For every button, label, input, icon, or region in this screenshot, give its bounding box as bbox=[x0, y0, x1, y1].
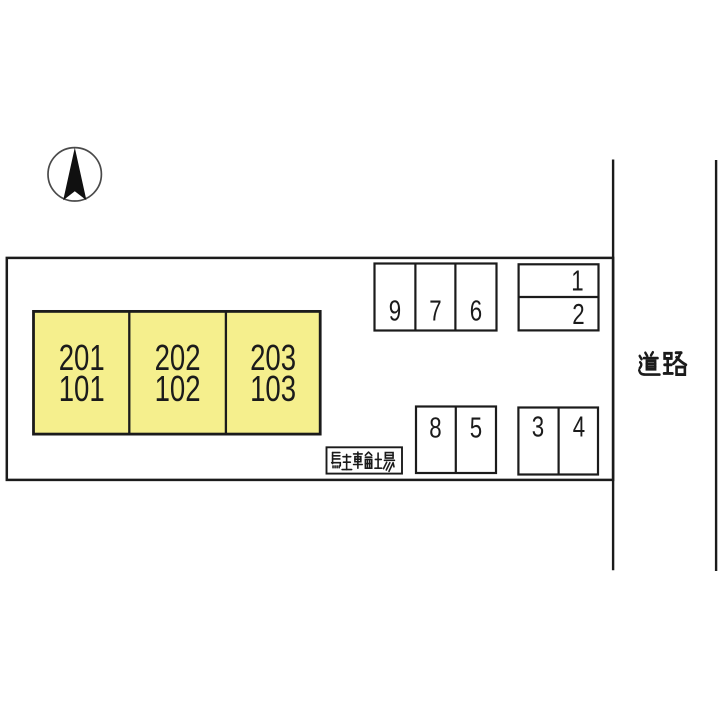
svg-text:5: 5 bbox=[470, 413, 482, 445]
svg-text:103: 103 bbox=[250, 368, 296, 409]
svg-text:2: 2 bbox=[572, 299, 584, 331]
svg-text:1: 1 bbox=[571, 266, 583, 298]
svg-text:102: 102 bbox=[155, 368, 201, 409]
svg-text:3: 3 bbox=[532, 412, 544, 444]
svg-text:9: 9 bbox=[389, 296, 401, 328]
svg-text:7: 7 bbox=[429, 296, 441, 328]
svg-text:8: 8 bbox=[429, 413, 441, 445]
svg-text:101: 101 bbox=[59, 368, 105, 409]
svg-text:6: 6 bbox=[470, 296, 482, 328]
svg-text:4: 4 bbox=[573, 412, 585, 444]
